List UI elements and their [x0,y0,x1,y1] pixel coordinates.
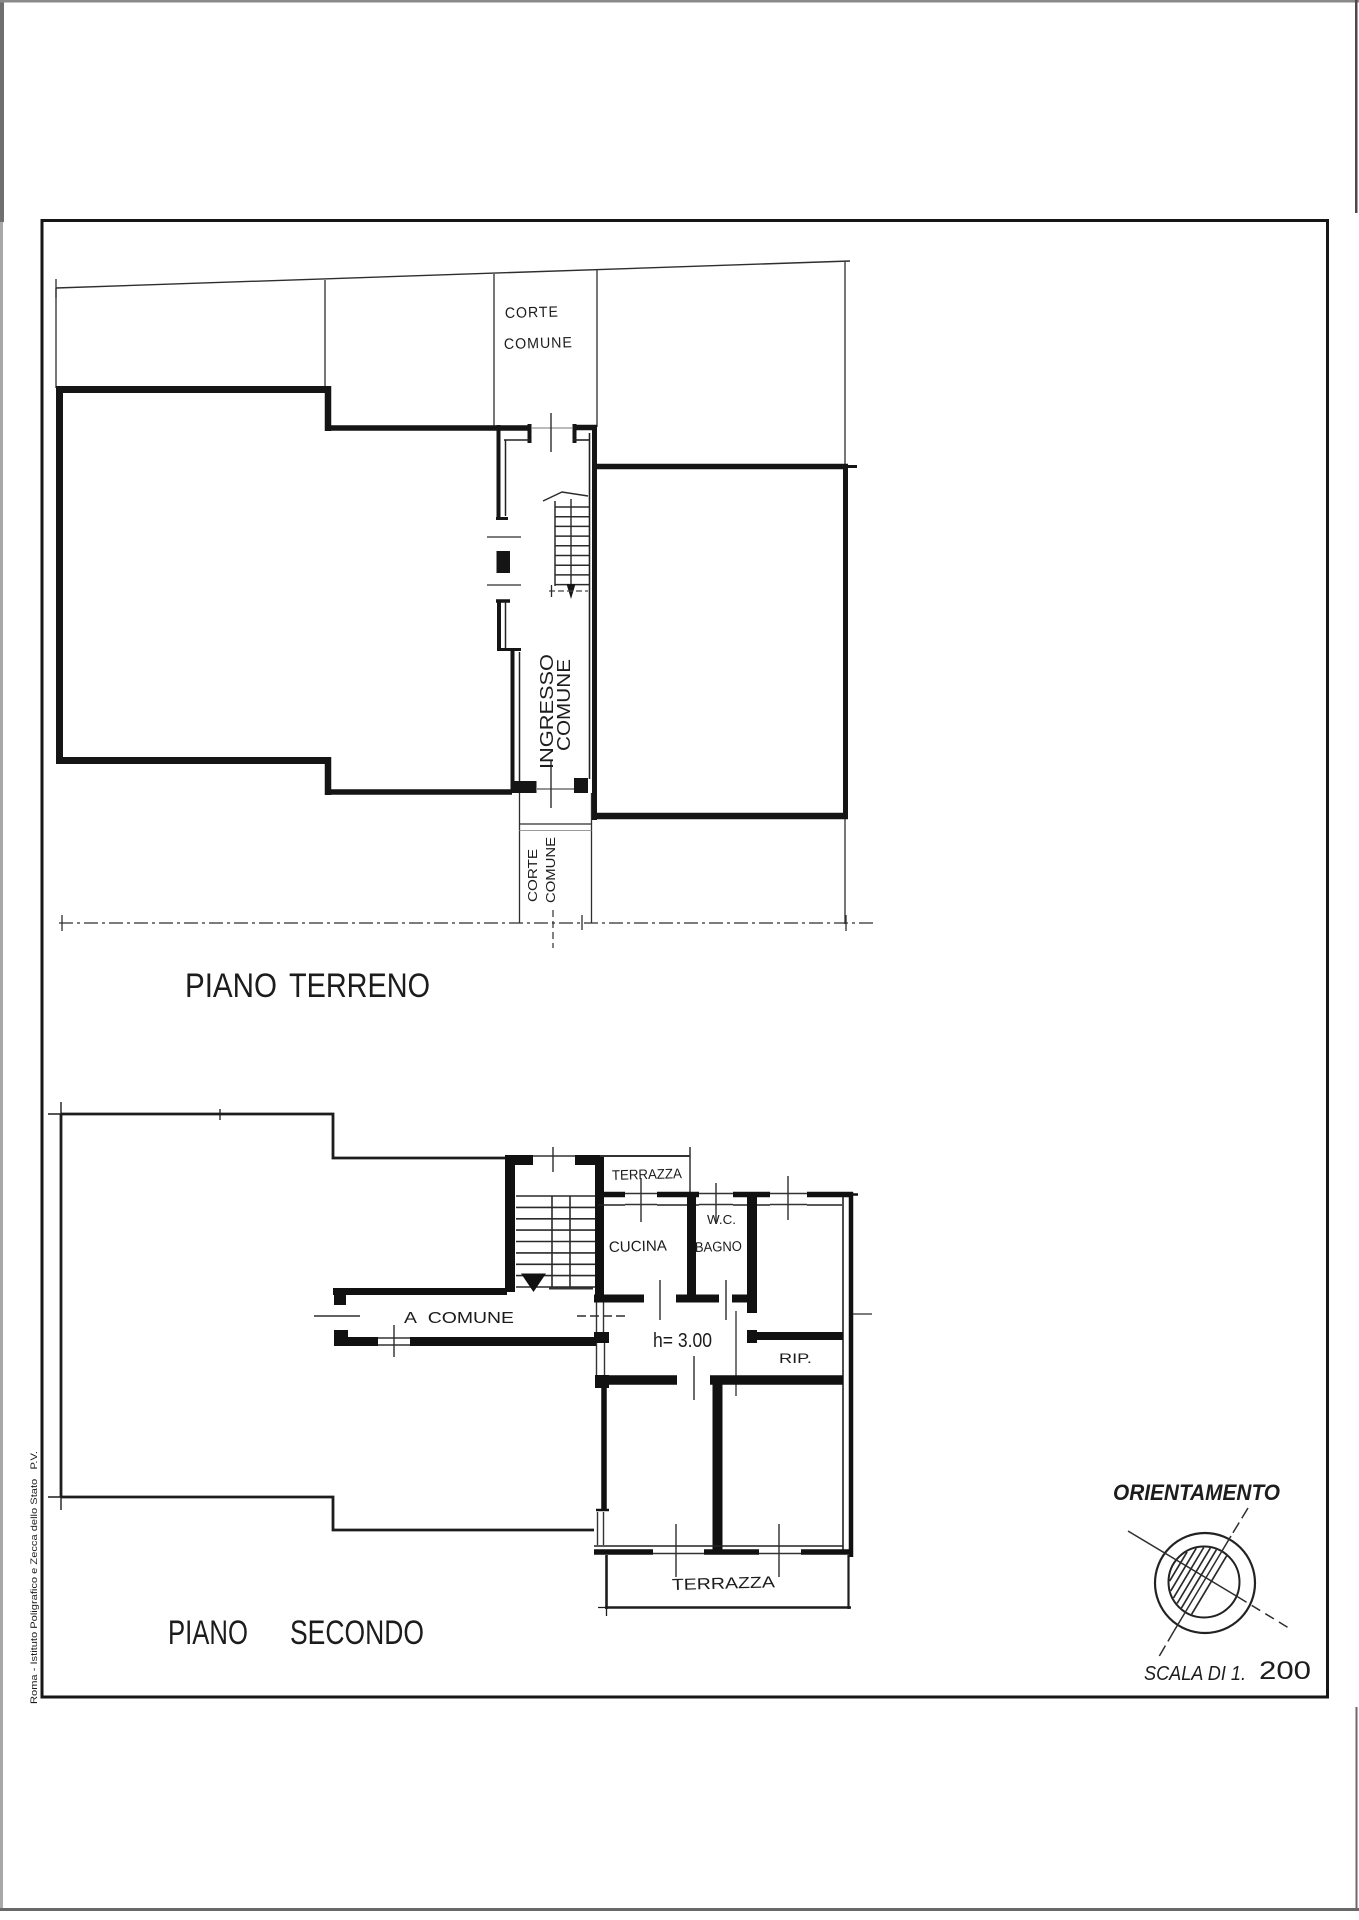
svg-text:Roma - Istituto Poligrafico e: Roma - Istituto Poligrafico e Zecca dell… [29,1451,40,1704]
svg-text:COMUNE: COMUNE [504,334,573,353]
svg-text:h= 3.00: h= 3.00 [653,1330,712,1352]
svg-text:COMUNE: COMUNE [554,659,574,751]
svg-text:COMUNE: COMUNE [543,837,558,903]
svg-text:BAGNO: BAGNO [695,1238,742,1255]
svg-text:SCALA DI 1.: SCALA DI 1. [1144,1663,1246,1685]
svg-text:A COMUNE: A COMUNE [404,1310,514,1327]
svg-text:CUCINA: CUCINA [609,1237,667,1256]
svg-text:TERRENO: TERRENO [289,967,430,1005]
svg-text:SECONDO: SECONDO [290,1614,424,1652]
svg-text:CORTE: CORTE [525,849,540,902]
svg-text:W.C.: W.C. [707,1212,736,1227]
svg-text:PIANO: PIANO [168,1614,248,1652]
svg-text:PIANO: PIANO [185,967,277,1005]
svg-text:TERRAZZA: TERRAZZA [612,1165,683,1183]
svg-text:TERRAZZA: TERRAZZA [672,1574,776,1594]
svg-text:ORIENTAMENTO: ORIENTAMENTO [1113,1480,1280,1505]
svg-text:CORTE: CORTE [505,304,559,322]
svg-text:200: 200 [1259,1657,1311,1685]
svg-text:RIP.: RIP. [779,1350,812,1366]
